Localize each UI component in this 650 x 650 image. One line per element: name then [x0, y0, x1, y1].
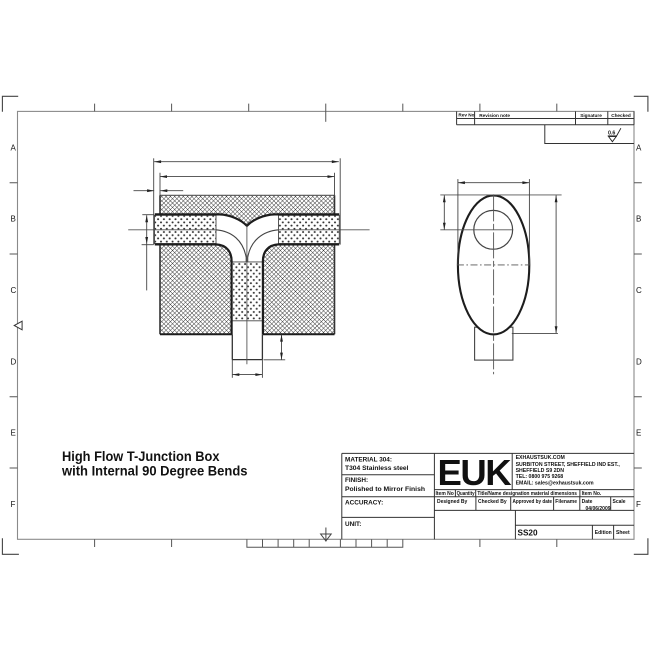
svg-text:Polished to Mirror Finish: Polished to Mirror Finish [345, 486, 425, 493]
svg-text:Scale: Scale [613, 499, 626, 505]
svg-text:A: A [11, 143, 17, 152]
svg-text:Item No: Item No [436, 491, 454, 497]
svg-text:Revision note: Revision note [479, 113, 510, 118]
svg-text:EUK: EUK [438, 452, 513, 493]
svg-text:B: B [636, 215, 641, 224]
svg-text:Sheet: Sheet [616, 530, 630, 536]
svg-text:Item No.: Item No. [582, 491, 602, 497]
svg-text:F: F [636, 500, 641, 509]
svg-text:TEL: 0800 975 9268: TEL: 0800 975 9268 [516, 474, 564, 480]
svg-text:B: B [11, 215, 16, 224]
svg-text:FINISH:: FINISH: [345, 477, 368, 484]
svg-text:Edition: Edition [595, 530, 612, 536]
svg-text:04/06/2009: 04/06/2009 [586, 506, 611, 512]
svg-text:Approved by date: Approved by date [513, 499, 553, 505]
svg-text:SS20: SS20 [518, 528, 538, 537]
svg-text:Designed By: Designed By [437, 499, 468, 505]
svg-text:EXHAUSTSUK.COM: EXHAUSTSUK.COM [516, 455, 565, 461]
svg-text:D: D [636, 357, 642, 366]
svg-text:E: E [11, 429, 16, 438]
svg-text:Quantity: Quantity [457, 491, 475, 497]
svg-text:A: A [636, 143, 642, 152]
svg-text:D: D [11, 357, 17, 366]
svg-text:High Flow T-Junction Box: High Flow T-Junction Box [62, 449, 220, 464]
svg-text:SURBITON STREET, SHEFFIELD IND: SURBITON STREET, SHEFFIELD IND EST., [516, 462, 621, 468]
svg-text:Checked By: Checked By [478, 499, 507, 505]
svg-text:Signature: Signature [580, 113, 602, 118]
svg-text:Rev No: Rev No [458, 113, 474, 118]
svg-text:ACCURACY:: ACCURACY: [345, 499, 383, 506]
svg-text:Filename: Filename [555, 499, 577, 505]
svg-text:C: C [11, 286, 17, 295]
svg-text:F: F [11, 500, 16, 509]
svg-text:with Internal 90 Degree Bends: with Internal 90 Degree Bends [61, 464, 247, 479]
svg-text:C: C [636, 286, 642, 295]
svg-text:Checked: Checked [611, 113, 631, 118]
svg-text:UNIT:: UNIT: [345, 521, 361, 528]
svg-text:MATERIAL 304:: MATERIAL 304: [345, 457, 392, 464]
svg-text:Title/Name designation materia: Title/Name designation material dimensio… [477, 491, 577, 497]
svg-text:Date: Date [582, 499, 593, 505]
svg-text:EMAIL: sales@exhaustsuk.com: EMAIL: sales@exhaustsuk.com [516, 481, 594, 487]
svg-text:T304 Stainless steel: T304 Stainless steel [345, 465, 409, 472]
svg-text:E: E [636, 429, 641, 438]
